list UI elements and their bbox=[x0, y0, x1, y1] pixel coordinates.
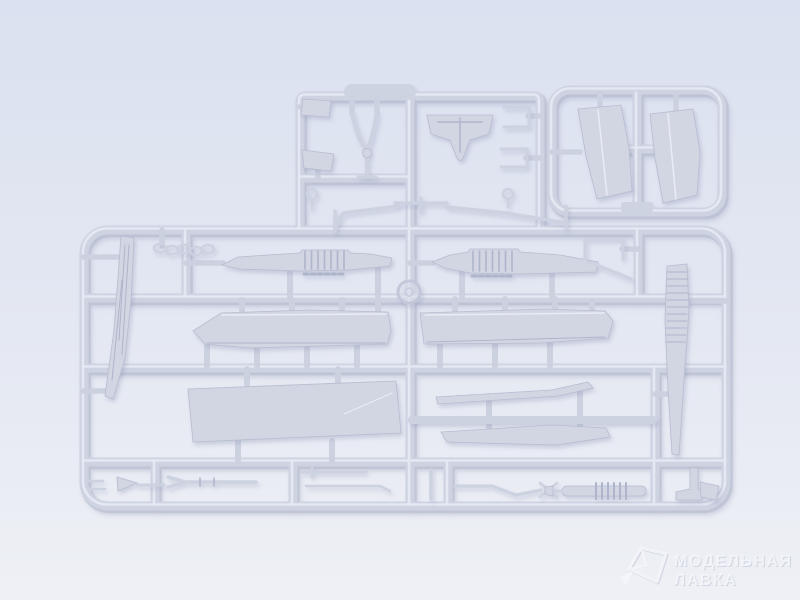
sprue-photo-canvas: МОДЕЛЬНАЯ ЛАВКА МОДЕЛЬНАЯ ЛАВКА bbox=[0, 0, 800, 600]
photo-of-model-sprues: МОДЕЛЬНАЯ ЛАВКА МОДЕЛЬНАЯ ЛАВКА bbox=[0, 0, 800, 600]
part-bracket-b bbox=[302, 150, 334, 171]
part-bracket-a bbox=[301, 99, 331, 117]
watermark-line2: ЛАВКА bbox=[674, 572, 737, 589]
watermark-line1: МОДЕЛЬНАЯ bbox=[674, 553, 792, 570]
wing-1-highlight bbox=[222, 314, 386, 315]
runner-top-bump bbox=[344, 84, 416, 100]
cylinder-cup bbox=[545, 486, 553, 496]
y-strut-hub bbox=[363, 149, 372, 158]
mold-mark-ring bbox=[398, 281, 420, 303]
part-wing-panel bbox=[188, 381, 401, 442]
mold-circle-mark bbox=[398, 281, 420, 303]
cylinder-body bbox=[562, 486, 646, 496]
part-wing-half-2 bbox=[420, 309, 613, 344]
wing-1-body bbox=[193, 310, 391, 348]
wing-panel-body bbox=[188, 381, 401, 442]
small-sprue-tab bbox=[621, 202, 653, 213]
part-wing-half-1 bbox=[193, 310, 391, 348]
fuselage-2-engine-ribs bbox=[473, 251, 512, 271]
fuselage-1-engine-ribs bbox=[305, 251, 344, 269]
